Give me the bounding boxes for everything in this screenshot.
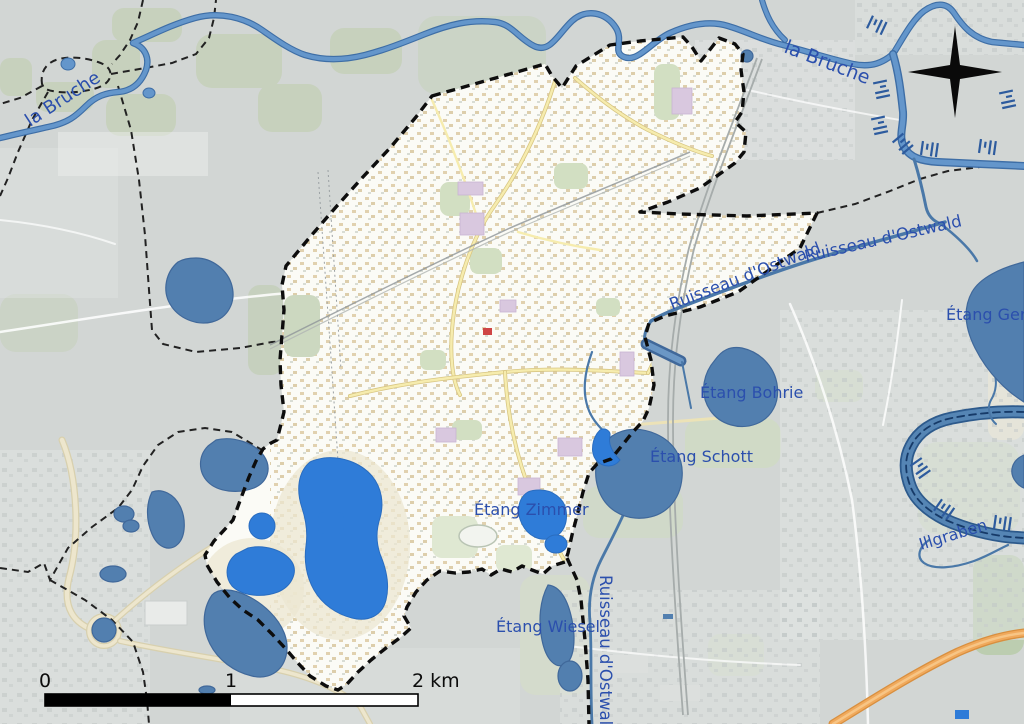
label-etang-schott: Étang Schott [650,447,753,466]
scale-tick-2km: 2 km [412,670,460,692]
label-ruisseau-ostwald-south: Ruisseau d'Ostwald [596,575,615,724]
roundabout-pond [92,618,116,642]
label-etang-bohrie: Étang Bohrie [700,383,803,402]
scale-bar-black-segment [45,694,231,706]
scale-tick-1: 1 [225,670,237,692]
scale-tick-0: 0 [39,670,51,692]
map-canvas: la Bruche la Bruche Ruisseau d'Ostwald R… [0,0,1024,724]
label-etang-wiesel: Étang Wiesel [496,617,600,636]
commune-location-map: la Bruche la Bruche Ruisseau d'Ostwald R… [0,0,1024,724]
label-etang-zimmer: Étang Zimmer [474,500,589,519]
scale-bar-white-segment [231,694,418,706]
label-etang-gerig: Étang Gerig [946,305,1024,324]
stadium [459,525,497,547]
town-center-red-block [483,328,492,335]
